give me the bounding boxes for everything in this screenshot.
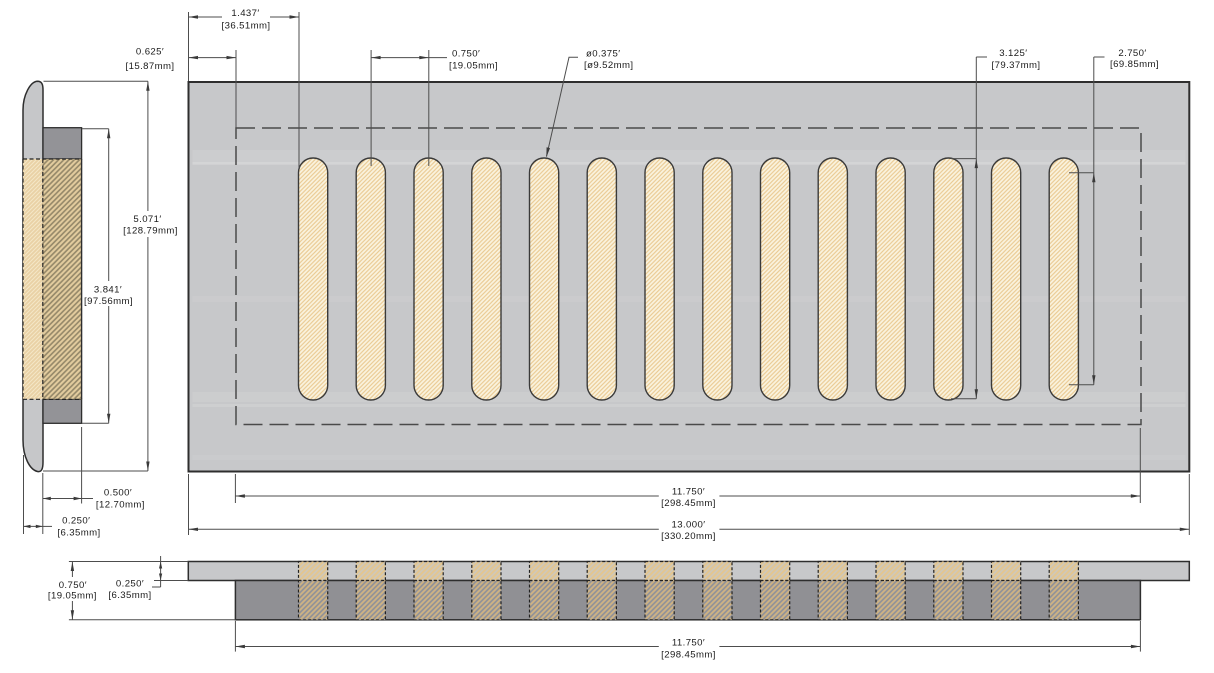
svg-text:3.841′: 3.841′: [94, 285, 122, 296]
svg-text:0.500′: 0.500′: [104, 488, 132, 499]
svg-text:ø0.375′: ø0.375′: [586, 49, 620, 60]
svg-text:[97.56mm]: [97.56mm]: [84, 296, 133, 307]
svg-text:2.750′: 2.750′: [1118, 48, 1146, 59]
svg-text:11.750′: 11.750′: [672, 638, 705, 649]
svg-text:[19.05mm]: [19.05mm]: [48, 590, 97, 601]
svg-text:[298.45mm]: [298.45mm]: [661, 650, 716, 661]
svg-text:0.250′: 0.250′: [62, 515, 90, 526]
svg-text:[79.37mm]: [79.37mm]: [992, 60, 1041, 71]
svg-text:0.250′: 0.250′: [116, 579, 144, 590]
svg-text:[19.05mm]: [19.05mm]: [449, 61, 498, 72]
svg-text:[298.45mm]: [298.45mm]: [661, 498, 716, 509]
svg-text:[12.70mm]: [12.70mm]: [96, 500, 145, 511]
svg-text:[128.79mm]: [128.79mm]: [123, 226, 178, 237]
svg-text:[15.87mm]: [15.87mm]: [126, 61, 175, 72]
svg-text:[ø9.52mm]: [ø9.52mm]: [584, 60, 633, 71]
svg-text:11.750′: 11.750′: [672, 487, 705, 498]
svg-text:[36.51mm]: [36.51mm]: [222, 21, 271, 32]
svg-text:0.625′: 0.625′: [136, 47, 164, 58]
svg-text:[330.20mm]: [330.20mm]: [661, 531, 716, 542]
svg-text:13.000′: 13.000′: [672, 520, 706, 531]
svg-text:[69.85mm]: [69.85mm]: [1110, 59, 1159, 70]
svg-text:0.750′: 0.750′: [452, 49, 480, 60]
svg-text:[6.35mm]: [6.35mm]: [57, 528, 100, 539]
svg-text:3.125′: 3.125′: [999, 48, 1027, 59]
svg-text:5.071′: 5.071′: [133, 214, 161, 225]
svg-text:[6.35mm]: [6.35mm]: [108, 590, 151, 601]
svg-text:1.437′: 1.437′: [231, 8, 259, 19]
